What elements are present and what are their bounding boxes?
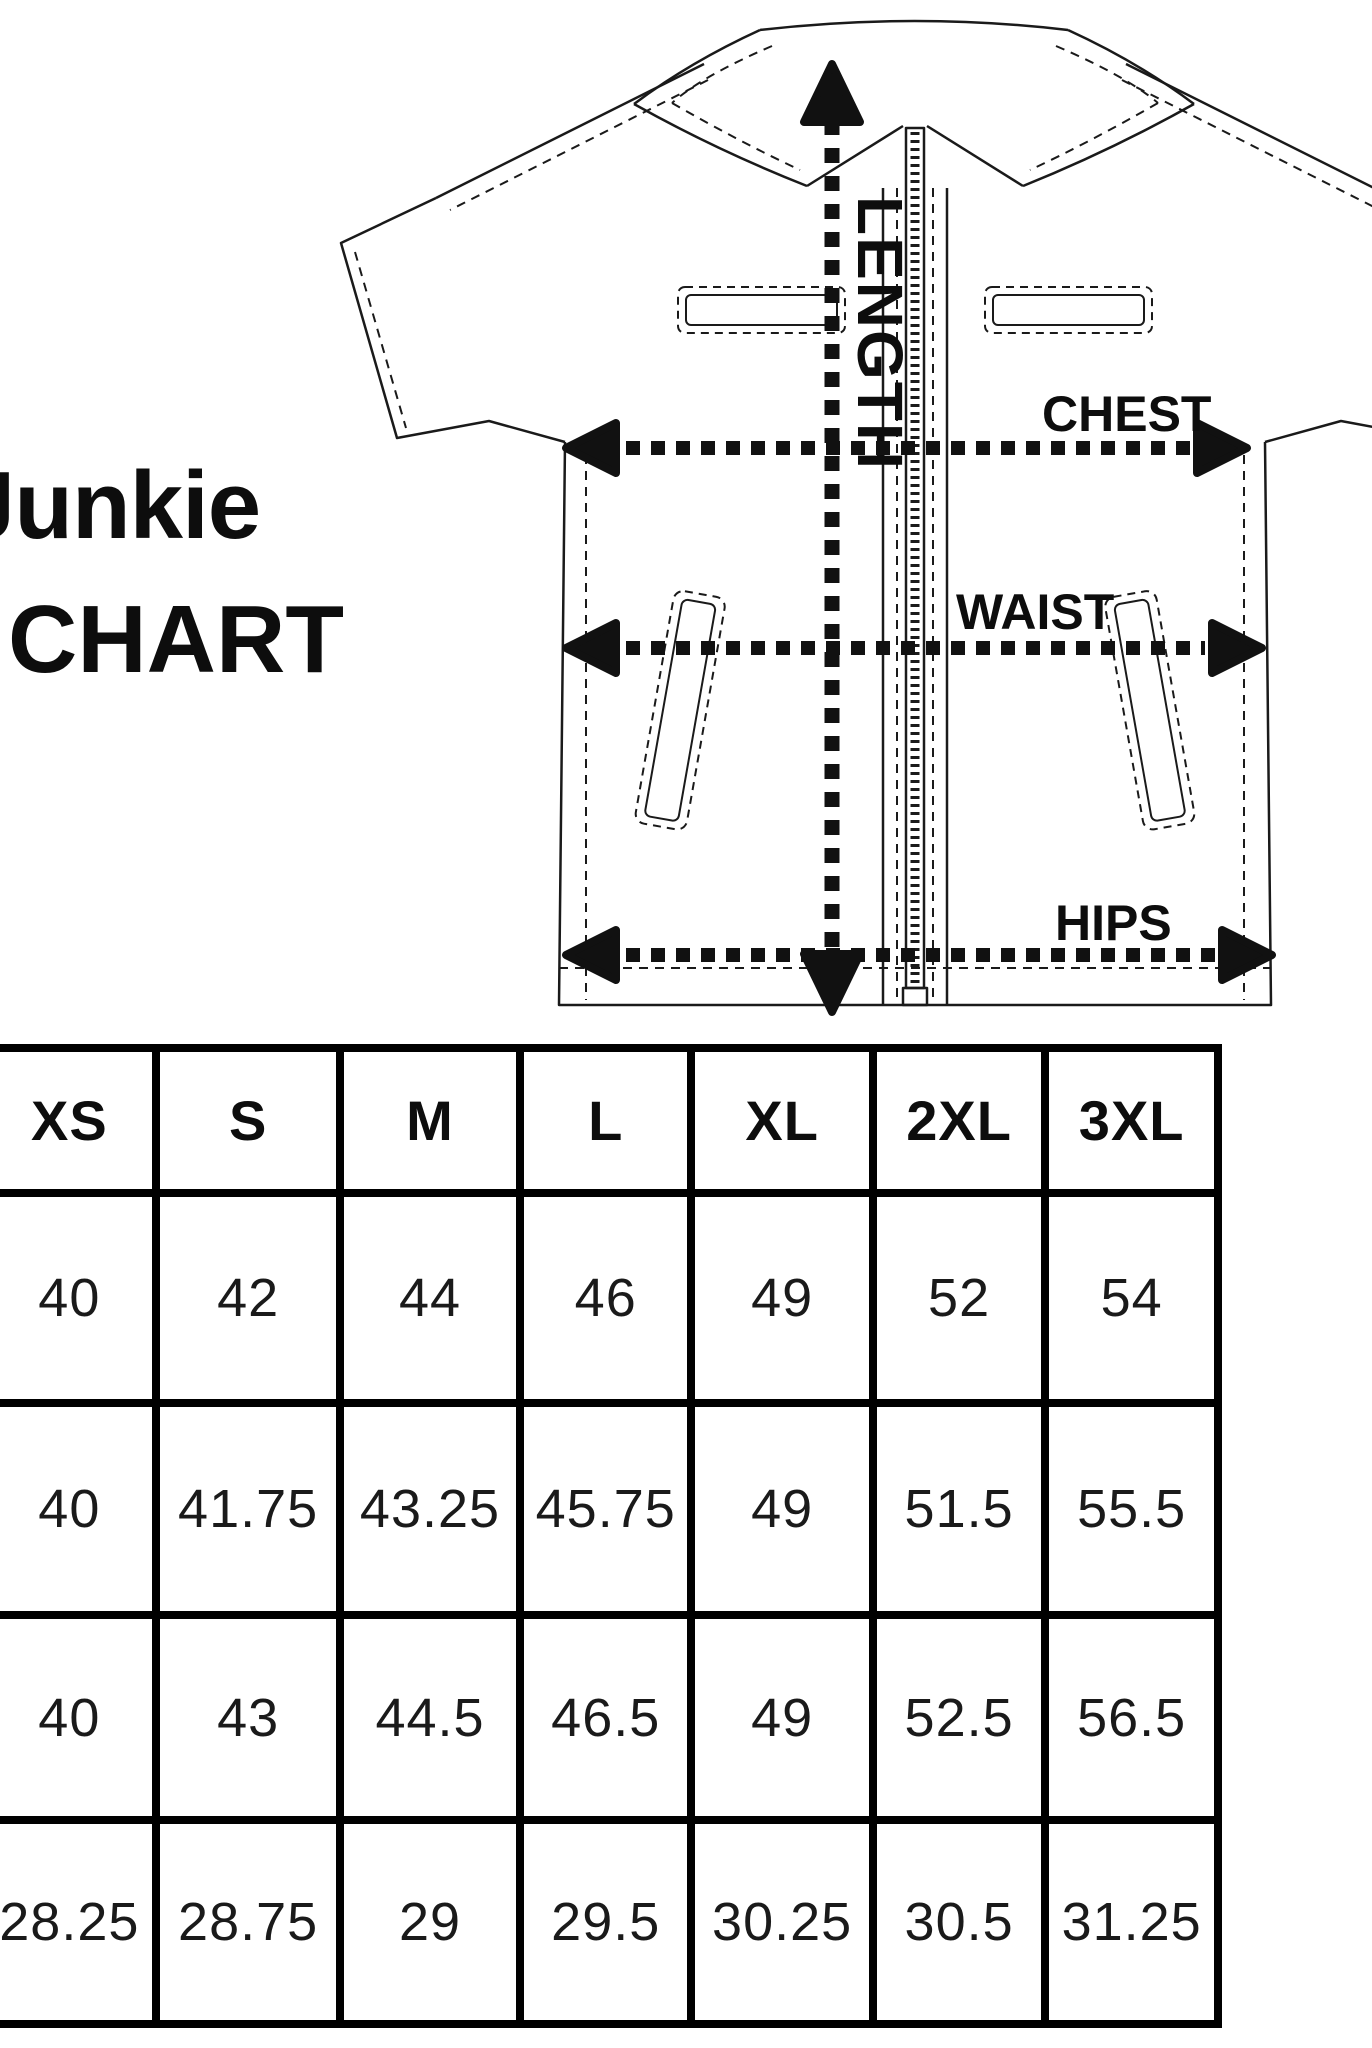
size-cell: 40 — [0, 1615, 156, 1820]
size-cell: 54 — [1045, 1193, 1218, 1403]
size-column-header: M — [340, 1048, 520, 1193]
size-cell: 30.25 — [691, 1820, 873, 2024]
garment-diagram: LENGTH CHEST WAIST HIPS — [0, 0, 1372, 1040]
size-cell: 28.75 — [156, 1820, 340, 2024]
arrow-down-icon — [804, 954, 860, 1012]
size-cell: 31.25 — [1045, 1820, 1218, 2024]
size-column-header: XS — [0, 1048, 156, 1193]
size-table-region: XSSMLXL2XL3XL 404244464952544041.7543.25… — [0, 1040, 1372, 2048]
size-cell: 46.5 — [520, 1615, 691, 1820]
length-label: LENGTH — [844, 196, 916, 471]
chest-label: CHEST — [1042, 386, 1211, 442]
arrow-right-icon — [1212, 623, 1262, 673]
size-cell: 40 — [0, 1403, 156, 1615]
size-cell: 52.5 — [873, 1615, 1045, 1820]
size-cell: 51.5 — [873, 1403, 1045, 1615]
shirt-stitching — [355, 46, 1372, 1005]
size-cell: 45.75 — [520, 1403, 691, 1615]
measure-length: LENGTH — [804, 64, 916, 1012]
hips-label: HIPS — [1055, 895, 1172, 951]
size-column-header: 2XL — [873, 1048, 1045, 1193]
table-row: 404344.546.54952.556.5 — [0, 1615, 1218, 1820]
size-cell: 44 — [340, 1193, 520, 1403]
arrow-right-icon — [1222, 930, 1272, 980]
size-cell: 40 — [0, 1193, 156, 1403]
arrow-up-icon — [804, 64, 860, 122]
size-column-header: XL — [691, 1048, 873, 1193]
size-cell: 52 — [873, 1193, 1045, 1403]
size-column-header: L — [520, 1048, 691, 1193]
size-cell: 30.5 — [873, 1820, 1045, 2024]
table-row: 28.2528.752929.530.2530.531.25 — [0, 1820, 1218, 2024]
size-cell: 49 — [691, 1615, 873, 1820]
arrow-left-icon — [566, 423, 616, 473]
size-cell: 29.5 — [520, 1820, 691, 2024]
size-cell: 28.25 — [0, 1820, 156, 2024]
table-row: 40424446495254 — [0, 1193, 1218, 1403]
size-cell: 55.5 — [1045, 1403, 1218, 1615]
size-cell: 41.75 — [156, 1403, 340, 1615]
size-cell: 49 — [691, 1403, 873, 1615]
size-cell: 44.5 — [340, 1615, 520, 1820]
size-cell: 29 — [340, 1820, 520, 2024]
arrow-left-icon — [566, 623, 616, 673]
size-cell: 49 — [691, 1193, 873, 1403]
size-table: XSSMLXL2XL3XL 404244464952544041.7543.25… — [0, 1044, 1222, 2028]
arrow-left-icon — [566, 930, 616, 980]
waist-label: WAIST — [956, 584, 1114, 640]
size-cell: 56.5 — [1045, 1615, 1218, 1820]
size-cell: 43.25 — [340, 1403, 520, 1615]
size-cell: 42 — [156, 1193, 340, 1403]
size-column-header: 3XL — [1045, 1048, 1218, 1193]
size-cell: 43 — [156, 1615, 340, 1820]
size-cell: 46 — [520, 1193, 691, 1403]
size-chart-page: Junkie CHART — [0, 0, 1372, 2048]
shirt-outline — [341, 21, 1372, 1005]
table-row: 4041.7543.2545.754951.555.5 — [0, 1403, 1218, 1615]
size-column-header: S — [156, 1048, 340, 1193]
